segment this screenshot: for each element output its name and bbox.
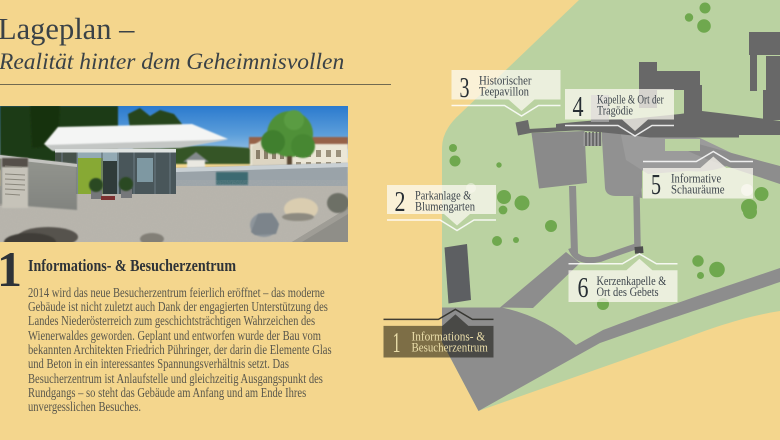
- svg-text:Blumengarten: Blumengarten: [415, 199, 475, 214]
- svg-text:4: 4: [573, 91, 584, 123]
- svg-text:2: 2: [395, 186, 406, 218]
- svg-text:3: 3: [460, 72, 470, 104]
- svg-text:Ort des Gebets: Ort des Gebets: [597, 284, 659, 299]
- svg-text:Schauräume: Schauräume: [671, 182, 725, 197]
- svg-text:6: 6: [578, 272, 589, 304]
- svg-text:Besucherzentrum: Besucherzentrum: [412, 340, 488, 355]
- svg-text:1: 1: [393, 327, 401, 359]
- svg-text:5: 5: [651, 169, 661, 201]
- svg-text:Tragödie: Tragödie: [597, 103, 633, 118]
- svg-text:Teepavillon: Teepavillon: [479, 84, 529, 99]
